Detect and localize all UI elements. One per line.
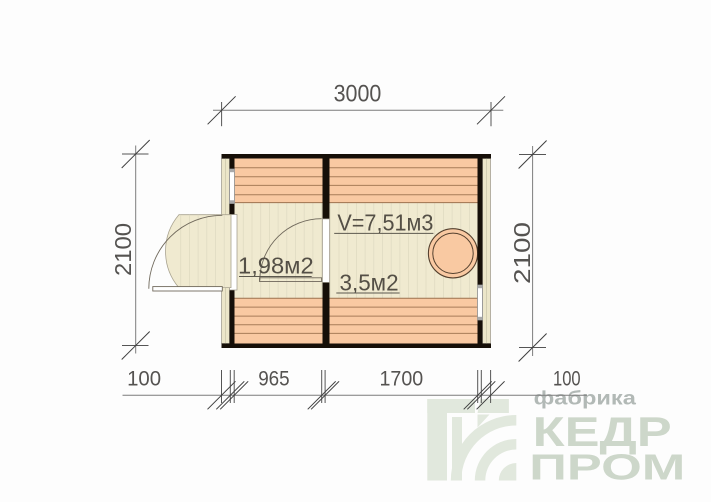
svg-text:фабрика: фабрика [534,388,637,409]
svg-text:965: 965 [258,368,290,391]
svg-text:V=7,51м3: V=7,51м3 [337,210,433,236]
svg-text:2100: 2100 [110,223,136,276]
svg-text:1700: 1700 [380,368,424,391]
svg-text:1,98м2: 1,98м2 [238,253,314,279]
svg-text:2100: 2100 [509,222,535,284]
svg-text:100: 100 [127,367,161,390]
svg-text:3000: 3000 [334,80,382,107]
svg-text:100: 100 [553,368,581,391]
svg-text:ПРОМ: ПРОМ [529,447,685,488]
svg-text:3,5м2: 3,5м2 [340,270,399,296]
